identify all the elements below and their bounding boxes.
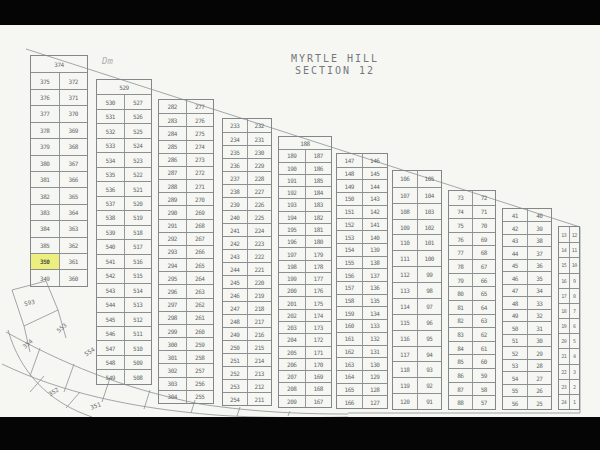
lot-cell: 255 (186, 391, 214, 403)
lot-row: 7669 (449, 232, 495, 246)
lot-cell: 244 (223, 263, 247, 275)
lot-row: 5229 (503, 346, 551, 359)
lot-cell: 57 (472, 396, 496, 409)
lot-cell: 236 (223, 159, 247, 171)
lot-cell: 87 (449, 383, 472, 396)
lot-row: 107104 (393, 187, 441, 203)
lot-cell: 85 (449, 355, 472, 368)
lot-cell: 37 (527, 247, 552, 259)
lot-cell: 43 (503, 235, 527, 247)
lot-cell: 289 (159, 193, 186, 205)
lot-cell: 273 (186, 154, 214, 166)
lot-cell: 221 (247, 263, 272, 275)
lot-row: 187 (559, 303, 579, 318)
lot-cell: 172 (305, 334, 332, 345)
lot-cell: 2 (569, 380, 580, 394)
lot-cell: 538 (97, 211, 124, 224)
lot-cell: 160 (337, 320, 362, 332)
lot-cell: 511 (124, 327, 152, 340)
lot-row: 381366 (31, 171, 87, 187)
lot-cell: 167 (305, 396, 332, 407)
lot-row: 375372 (31, 72, 87, 88)
lot-row: 223 (559, 364, 579, 379)
lot-row: 291268 (159, 219, 213, 232)
lot-cell: 536 (97, 182, 124, 195)
lot-row: 293266 (159, 245, 213, 258)
lot-cell: 53 (503, 360, 527, 372)
lot-cell: 288 (159, 180, 186, 192)
lot-cell: 60 (472, 355, 496, 368)
lot-row: 4833 (503, 296, 551, 309)
lot-row: 196 (559, 318, 579, 333)
lot-cell: 219 (247, 289, 272, 301)
lot-cell: 222 (247, 250, 272, 262)
lot-row: 283276 (159, 113, 213, 126)
lot-cell: 36 (527, 260, 552, 272)
lot-cell: 137 (362, 269, 388, 281)
lot-cell: 114 (393, 299, 417, 314)
lot-row: 377370 (31, 105, 87, 121)
lot-row: 200176 (279, 284, 331, 296)
lot-cell: 260 (186, 325, 214, 337)
lot-cell: 362 (59, 238, 88, 253)
lot-cell: 94 (417, 347, 442, 362)
lot-row: 106105 (393, 171, 441, 187)
lot-cell: 41 (503, 209, 527, 221)
lot-row: 380367 (31, 155, 87, 171)
lot-cell: 108 (393, 204, 417, 219)
lot-cell: 240 (223, 211, 247, 223)
lot-cell: 228 (247, 172, 272, 184)
lot-cell: 272 (186, 167, 214, 179)
lot-cell: 256 (186, 378, 214, 390)
lot-cell: 156 (337, 269, 362, 281)
lot-row: 5130 (503, 334, 551, 347)
lot-row: 191185 (279, 174, 331, 186)
road-lot-label: 554 (83, 346, 96, 358)
lot-cell: 178 (305, 261, 332, 272)
lot-row: 295264 (159, 271, 213, 284)
lot-cell: 264 (186, 272, 214, 284)
lot-cell: 549 (97, 370, 124, 383)
lot-cell: 26 (527, 385, 552, 397)
lot-cell: 18 (559, 304, 569, 318)
lot-row: 535522 (97, 167, 151, 181)
lot-cell: 21 (559, 349, 569, 363)
lot-cell: 142 (362, 206, 388, 218)
lot-cell: 249 (223, 328, 247, 340)
lot-cell: 518 (124, 226, 152, 239)
lot-row: 158135 (337, 294, 387, 307)
lot-row: 232 (559, 379, 579, 394)
lot-grid-strip: 5295305275315265325255335245345235355225… (96, 79, 152, 385)
lot-row: 1411 (559, 242, 579, 257)
lot-row: 530527 (97, 94, 151, 108)
lot-cell: 290 (159, 206, 186, 218)
lot-cell: 65 (472, 287, 496, 300)
lot-grid-strip: 4140423943384437453646354734483349325031… (502, 208, 552, 410)
lot-row: 379368 (31, 138, 87, 154)
lot-row: 214 (559, 348, 579, 363)
lot-row: 198178 (279, 260, 331, 272)
lot-cell: 169 (305, 371, 332, 382)
lot-cell: 148 (337, 168, 362, 180)
lot-row: 188 (279, 137, 331, 149)
lot-cell: 7 (569, 304, 580, 318)
lot-cell: 246 (223, 289, 247, 301)
lot-row: 287272 (159, 166, 213, 179)
lot-cell: 211 (247, 393, 272, 405)
lot-cell: 285 (159, 141, 186, 153)
lot-cell: 166 (337, 396, 362, 408)
lot-row: 378369 (31, 122, 87, 138)
lot-row: 163130 (337, 357, 387, 370)
lot-cell: 215 (247, 341, 272, 353)
lot-cell: 257 (186, 364, 214, 376)
lot-grid-strip: 1471461481451491441501431511421521411531… (336, 153, 388, 409)
lot-cell: 17 (559, 289, 569, 303)
lot-cell: 232 (247, 119, 272, 132)
lot-cell: 218 (247, 302, 272, 314)
lot-row: 162131 (337, 345, 387, 358)
lot-row: 532525 (97, 123, 151, 137)
lot-cell: 29 (527, 347, 552, 359)
lot-cell: 229 (247, 159, 272, 171)
lot-cell: 56 (503, 397, 527, 409)
lot-cell: 296 (159, 285, 186, 297)
lot-cell: 265 (186, 259, 214, 271)
lot-cell: 370 (59, 106, 88, 121)
lot-cell: 38 (527, 235, 552, 247)
lot-cell: 193 (279, 199, 305, 210)
lot-row: 7471 (449, 205, 495, 219)
lot-cell: 102 (417, 220, 442, 235)
lot-cell: 176 (305, 285, 332, 296)
lot-cell: 303 (159, 378, 186, 390)
lot-cell: 286 (159, 154, 186, 166)
lot-cell: 299 (159, 325, 186, 337)
lot-cell: 301 (159, 351, 186, 363)
lot-row: 195181 (279, 223, 331, 235)
lot-cell: 130 (362, 358, 388, 370)
lot-row: 110101 (393, 234, 441, 250)
lot-cell: 109 (393, 220, 417, 235)
lot-cell: 141 (362, 219, 388, 231)
lot-cell: 120 (393, 394, 417, 409)
lot-cell: 153 (337, 231, 362, 243)
lot-cell: 380 (31, 156, 59, 171)
lot-cell: 119 (393, 378, 417, 393)
lot-cell: 46 (503, 272, 527, 284)
lot-cell: 165 (337, 384, 362, 396)
lot-row: 155138 (337, 256, 387, 269)
lot-cell: 4 (569, 349, 580, 363)
lot-cell: 110 (393, 235, 417, 250)
lot-row: 150143 (337, 192, 387, 205)
lot-row: 151142 (337, 205, 387, 218)
lot-cell: 27 (527, 372, 552, 384)
lot-cell: 251 (223, 354, 247, 366)
lot-cell: 103 (417, 204, 442, 219)
lot-cell: 189 (279, 150, 305, 161)
lot-cell: 544 (97, 298, 124, 311)
lot-row: 5427 (503, 371, 551, 384)
lot-cell: 171 (305, 347, 332, 358)
lot-row: 12091 (393, 393, 441, 409)
lot-row: 376371 (31, 89, 87, 105)
lot-cell: 55 (503, 385, 527, 397)
lot-cell: 241 (223, 224, 247, 236)
lot-cell: 509 (124, 356, 152, 369)
lot-cell: 297 (159, 299, 186, 311)
lot-row: 8857 (449, 395, 495, 409)
lot-cell: 529 (97, 80, 151, 94)
lot-row: 233232 (223, 119, 271, 132)
lot-cell: 369 (59, 123, 88, 138)
lot-cell: 151 (337, 206, 362, 218)
lot-cell: 361 (59, 254, 88, 269)
lot-cell: 3 (569, 365, 580, 379)
lot-cell: 182 (305, 212, 332, 223)
lot-cell: 129 (362, 371, 388, 383)
lot-cell: 239 (223, 198, 247, 210)
lot-cell: 291 (159, 220, 186, 232)
lot-cell: 216 (247, 328, 272, 340)
lot-row: 4338 (503, 234, 551, 247)
lot-cell: 11 (569, 243, 580, 257)
lot-cell: 6 (569, 319, 580, 333)
lot-row: 153140 (337, 230, 387, 243)
lot-row: 288271 (159, 179, 213, 192)
lot-cell: 275 (186, 127, 214, 139)
lot-cell: 62 (472, 328, 496, 341)
section-title: MYRTLE HILL SECTION 12 (255, 53, 415, 77)
lot-cell: 79 (449, 274, 472, 287)
lot-row: 292267 (159, 232, 213, 245)
lot-cell: 30 (527, 335, 552, 347)
lot-cell: 48 (503, 297, 527, 309)
lot-cell: 9 (569, 274, 580, 288)
lot-cell: 96 (417, 315, 442, 330)
lot-cell: 230 (247, 146, 272, 158)
lot-cell: 69 (472, 233, 496, 246)
lot-cell: 186 (305, 163, 332, 174)
lot-cell: 203 (279, 322, 305, 333)
lot-cell: 208 (279, 383, 305, 394)
lot-cell: 14 (559, 243, 569, 257)
lot-row: 239226 (223, 197, 271, 210)
lot-row: 11398 (393, 282, 441, 298)
lot-row: 8065 (449, 286, 495, 300)
lot-cell: 514 (124, 284, 152, 297)
road-lot-label: 352 (47, 386, 60, 398)
lot-row: 197179 (279, 247, 331, 259)
lot-cell: 271 (186, 180, 214, 192)
lot-cell: 72 (472, 191, 496, 205)
lot-row: 285274 (159, 140, 213, 153)
lot-cell: 144 (362, 180, 388, 192)
lot-cell: 136 (362, 282, 388, 294)
lot-row: 209167 (279, 395, 331, 407)
lot-row: 349360 (31, 269, 87, 285)
lot-row: 8758 (449, 382, 495, 396)
section-number: SECTION 12 (255, 65, 415, 77)
lot-cell: 185 (305, 175, 332, 186)
lot-row: 240225 (223, 210, 271, 223)
lot-cell: 1 (569, 395, 580, 409)
lot-cell: 138 (362, 257, 388, 269)
lot-row: 531526 (97, 109, 151, 123)
lot-row: 157136 (337, 281, 387, 294)
lot-cell: 75 (449, 219, 472, 232)
lot-cell: 224 (247, 224, 272, 236)
lot-cell: 134 (362, 307, 388, 319)
lot-cell: 8 (569, 289, 580, 303)
lot-cell: 80 (449, 287, 472, 300)
lot-row: 253212 (223, 379, 271, 392)
lot-cell: 195 (279, 224, 305, 235)
lot-row: 234231 (223, 132, 271, 145)
lot-cell: 92 (417, 378, 442, 393)
lot-cell: 174 (305, 310, 332, 321)
lot-cell: 292 (159, 233, 186, 245)
lot-cell: 54 (503, 372, 527, 384)
lot-cell: 154 (337, 244, 362, 256)
lot-cell: 379 (31, 139, 59, 154)
lot-cell: 250 (223, 341, 247, 353)
lot-cell: 67 (472, 260, 496, 273)
lot-cell: 86 (449, 369, 472, 382)
lot-row: 4734 (503, 284, 551, 297)
lot-row: 282277 (159, 100, 213, 113)
lot-cell: 205 (279, 347, 305, 358)
lot-row: 7768 (449, 245, 495, 259)
lot-row: 301258 (159, 350, 213, 363)
lot-row: 237228 (223, 171, 271, 184)
lot-row: 4536 (503, 259, 551, 272)
lot-grid-strip: 1881891871901861911851921841931831941821… (278, 136, 332, 408)
lot-cell: 524 (124, 139, 152, 152)
lot-row: 238227 (223, 184, 271, 197)
lot-cell: 183 (305, 199, 332, 210)
lot-cell: 133 (362, 320, 388, 332)
lot-row: 539518 (97, 225, 151, 239)
lot-cell: 533 (97, 139, 124, 152)
lot-row: 5031 (503, 321, 551, 334)
lot-cell: 519 (124, 211, 152, 224)
lot-cell: 535 (97, 168, 124, 181)
lot-row: 148145 (337, 167, 387, 180)
lot-cell: 188 (279, 137, 331, 149)
lot-row: 383364 (31, 204, 87, 220)
lot-row: 298261 (159, 311, 213, 324)
lot-row: 152141 (337, 218, 387, 231)
lot-cell: 300 (159, 338, 186, 350)
lot-cell: 131 (362, 346, 388, 358)
lot-cell: 164 (337, 371, 362, 383)
lot-cell: 170 (305, 359, 332, 370)
lot-cell: 23 (559, 380, 569, 394)
lot-row: 290269 (159, 205, 213, 218)
lot-grid-strip: 1061051071041081031091021101011111001129… (392, 170, 442, 410)
lot-row: 289270 (159, 192, 213, 205)
lot-cell: 162 (337, 346, 362, 358)
lot-cell: 49 (503, 310, 527, 322)
lot-cell: 537 (97, 197, 124, 210)
lot-cell: 83 (449, 328, 472, 341)
lot-cell: 15 (559, 258, 569, 272)
lot-cell: 159 (337, 307, 362, 319)
lot-cell: 10 (569, 258, 580, 272)
lot-cell: 262 (186, 299, 214, 311)
lot-row: 541516 (97, 254, 151, 268)
lot-row: 11497 (393, 298, 441, 314)
lot-cell: 527 (124, 95, 152, 108)
lot-cell: 32 (527, 310, 552, 322)
lot-cell: 63 (472, 315, 496, 328)
lot-cell: 263 (186, 285, 214, 297)
lot-cell: 523 (124, 153, 152, 166)
lot-cell: 68 (472, 246, 496, 259)
road-lot-label: 553 (55, 321, 68, 333)
lot-cell: 206 (279, 359, 305, 370)
lot-row: 537520 (97, 196, 151, 210)
lot-row: 254211 (223, 392, 271, 405)
lot-cell: 516 (124, 255, 152, 268)
lot-cell: 161 (337, 333, 362, 345)
lot-cell: 100 (417, 251, 442, 266)
lot-cell: 93 (417, 362, 442, 377)
lot-cell: 77 (449, 246, 472, 259)
lot-cell: 374 (31, 56, 87, 72)
lot-cell: 51 (503, 335, 527, 347)
lot-cell: 209 (279, 396, 305, 407)
lot-row: 7966 (449, 273, 495, 287)
cemetery-name: MYRTLE HILL (255, 53, 415, 65)
lot-row: 251214 (223, 353, 271, 366)
lot-row: 250215 (223, 340, 271, 353)
lot-cell: 384 (31, 221, 59, 236)
scanned-plat-image: 3743753723763713773703783693793683803673… (0, 0, 600, 450)
lot-row: 536521 (97, 181, 151, 195)
lot-cell: 33 (527, 297, 552, 309)
lot-row: 11794 (393, 346, 441, 362)
lot-row: 546511 (97, 326, 151, 340)
lot-cell: 197 (279, 248, 305, 259)
lot-row: 246219 (223, 288, 271, 301)
lot-cell: 113 (393, 283, 417, 298)
lot-cell: 360 (59, 270, 88, 285)
lot-row: 304255 (159, 390, 213, 403)
lot-cell: 155 (337, 257, 362, 269)
lot-row: 294265 (159, 258, 213, 271)
lot-cell: 58 (472, 383, 496, 396)
lot-cell: 520 (124, 197, 152, 210)
lot-cell: 150 (337, 193, 362, 205)
lot-row: 286273 (159, 153, 213, 166)
lot-cell: 213 (247, 367, 272, 379)
lot-row: 545512 (97, 312, 151, 326)
highlighted-lot: 350 (31, 254, 59, 269)
lot-row: 248217 (223, 314, 271, 327)
lot-row: 534523 (97, 152, 151, 166)
letterbox-bottom (0, 417, 600, 450)
lot-cell: 139 (362, 244, 388, 256)
lot-cell: 192 (279, 187, 305, 198)
lot-cell: 515 (124, 269, 152, 282)
lot-cell: 204 (279, 334, 305, 345)
lot-cell: 383 (31, 205, 59, 220)
